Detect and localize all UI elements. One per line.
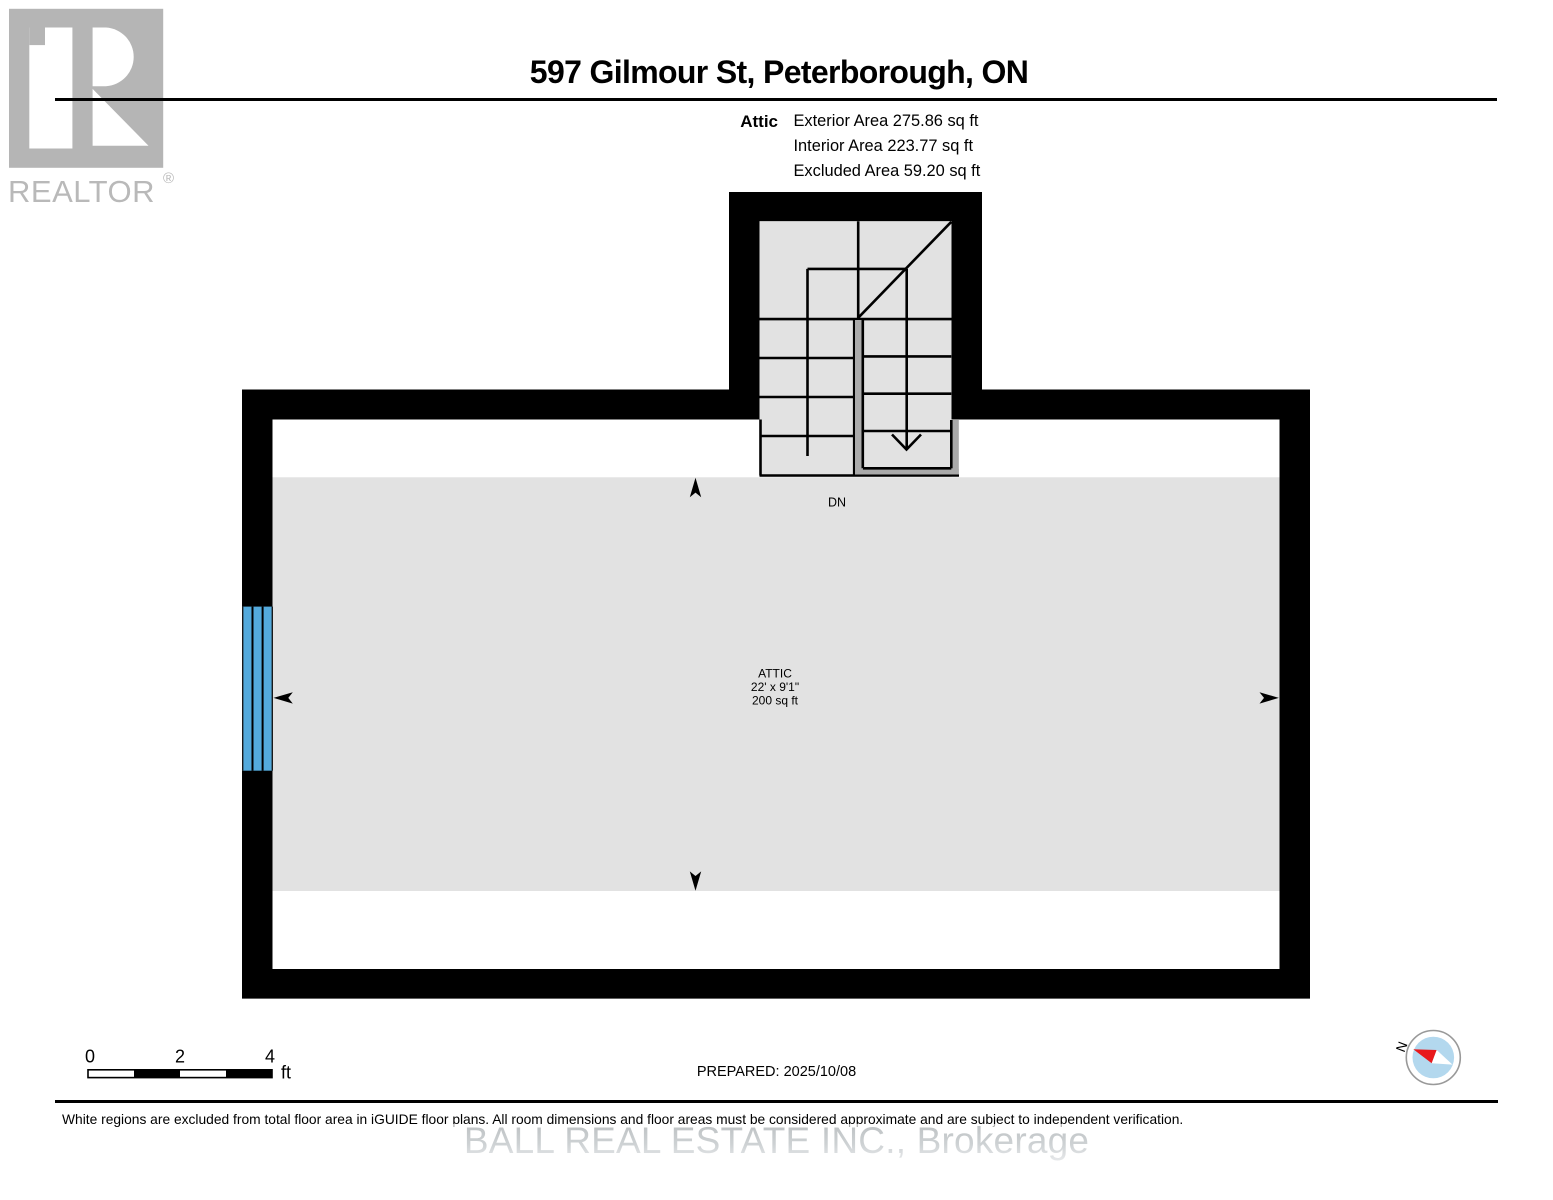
- svg-text:22' x 9'1": 22' x 9'1": [751, 680, 799, 694]
- svg-text:DN: DN: [828, 496, 846, 510]
- svg-text:200 sq ft: 200 sq ft: [752, 694, 799, 708]
- svg-text:ATTIC: ATTIC: [758, 667, 792, 681]
